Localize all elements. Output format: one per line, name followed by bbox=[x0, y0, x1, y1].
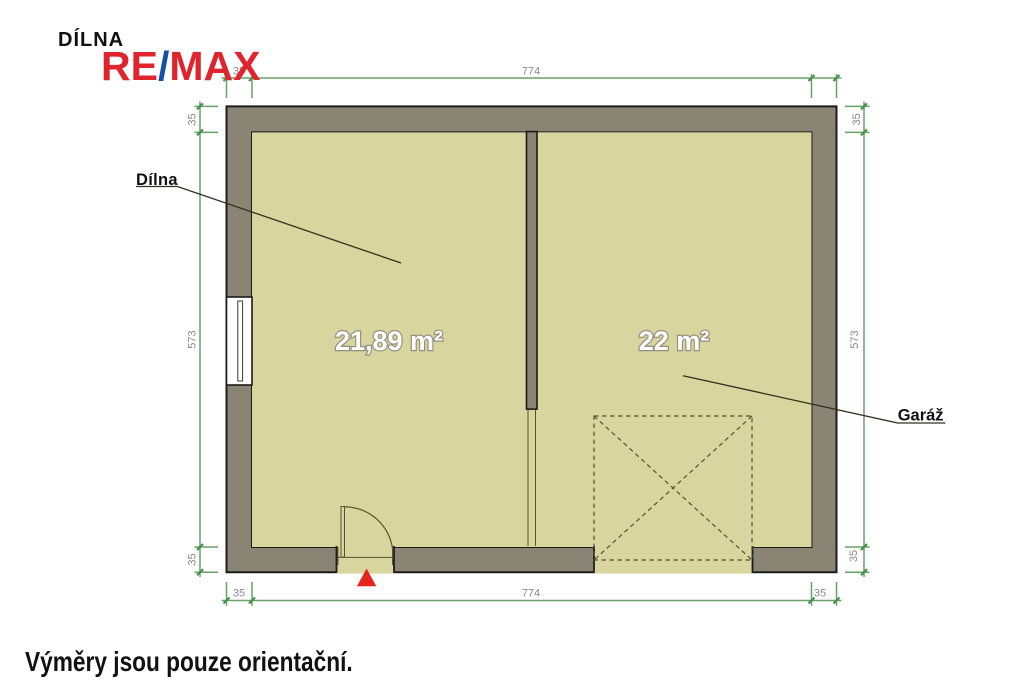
svg-text:35: 35 bbox=[187, 553, 199, 565]
svg-text:35: 35 bbox=[233, 588, 245, 600]
svg-text:573: 573 bbox=[187, 330, 199, 348]
svg-text:35: 35 bbox=[851, 113, 863, 125]
svg-text:573: 573 bbox=[849, 330, 861, 348]
svg-text:Dílna: Dílna bbox=[136, 171, 178, 189]
svg-text:35: 35 bbox=[814, 588, 826, 600]
svg-text:21,89 m²: 21,89 m² bbox=[335, 326, 443, 356]
svg-text:774: 774 bbox=[522, 66, 540, 78]
svg-text:Garáž: Garáž bbox=[898, 407, 944, 425]
svg-text:35: 35 bbox=[187, 113, 199, 125]
svg-text:35: 35 bbox=[848, 550, 860, 562]
svg-text:22 m²: 22 m² bbox=[639, 326, 710, 356]
svg-text:774: 774 bbox=[522, 588, 540, 600]
